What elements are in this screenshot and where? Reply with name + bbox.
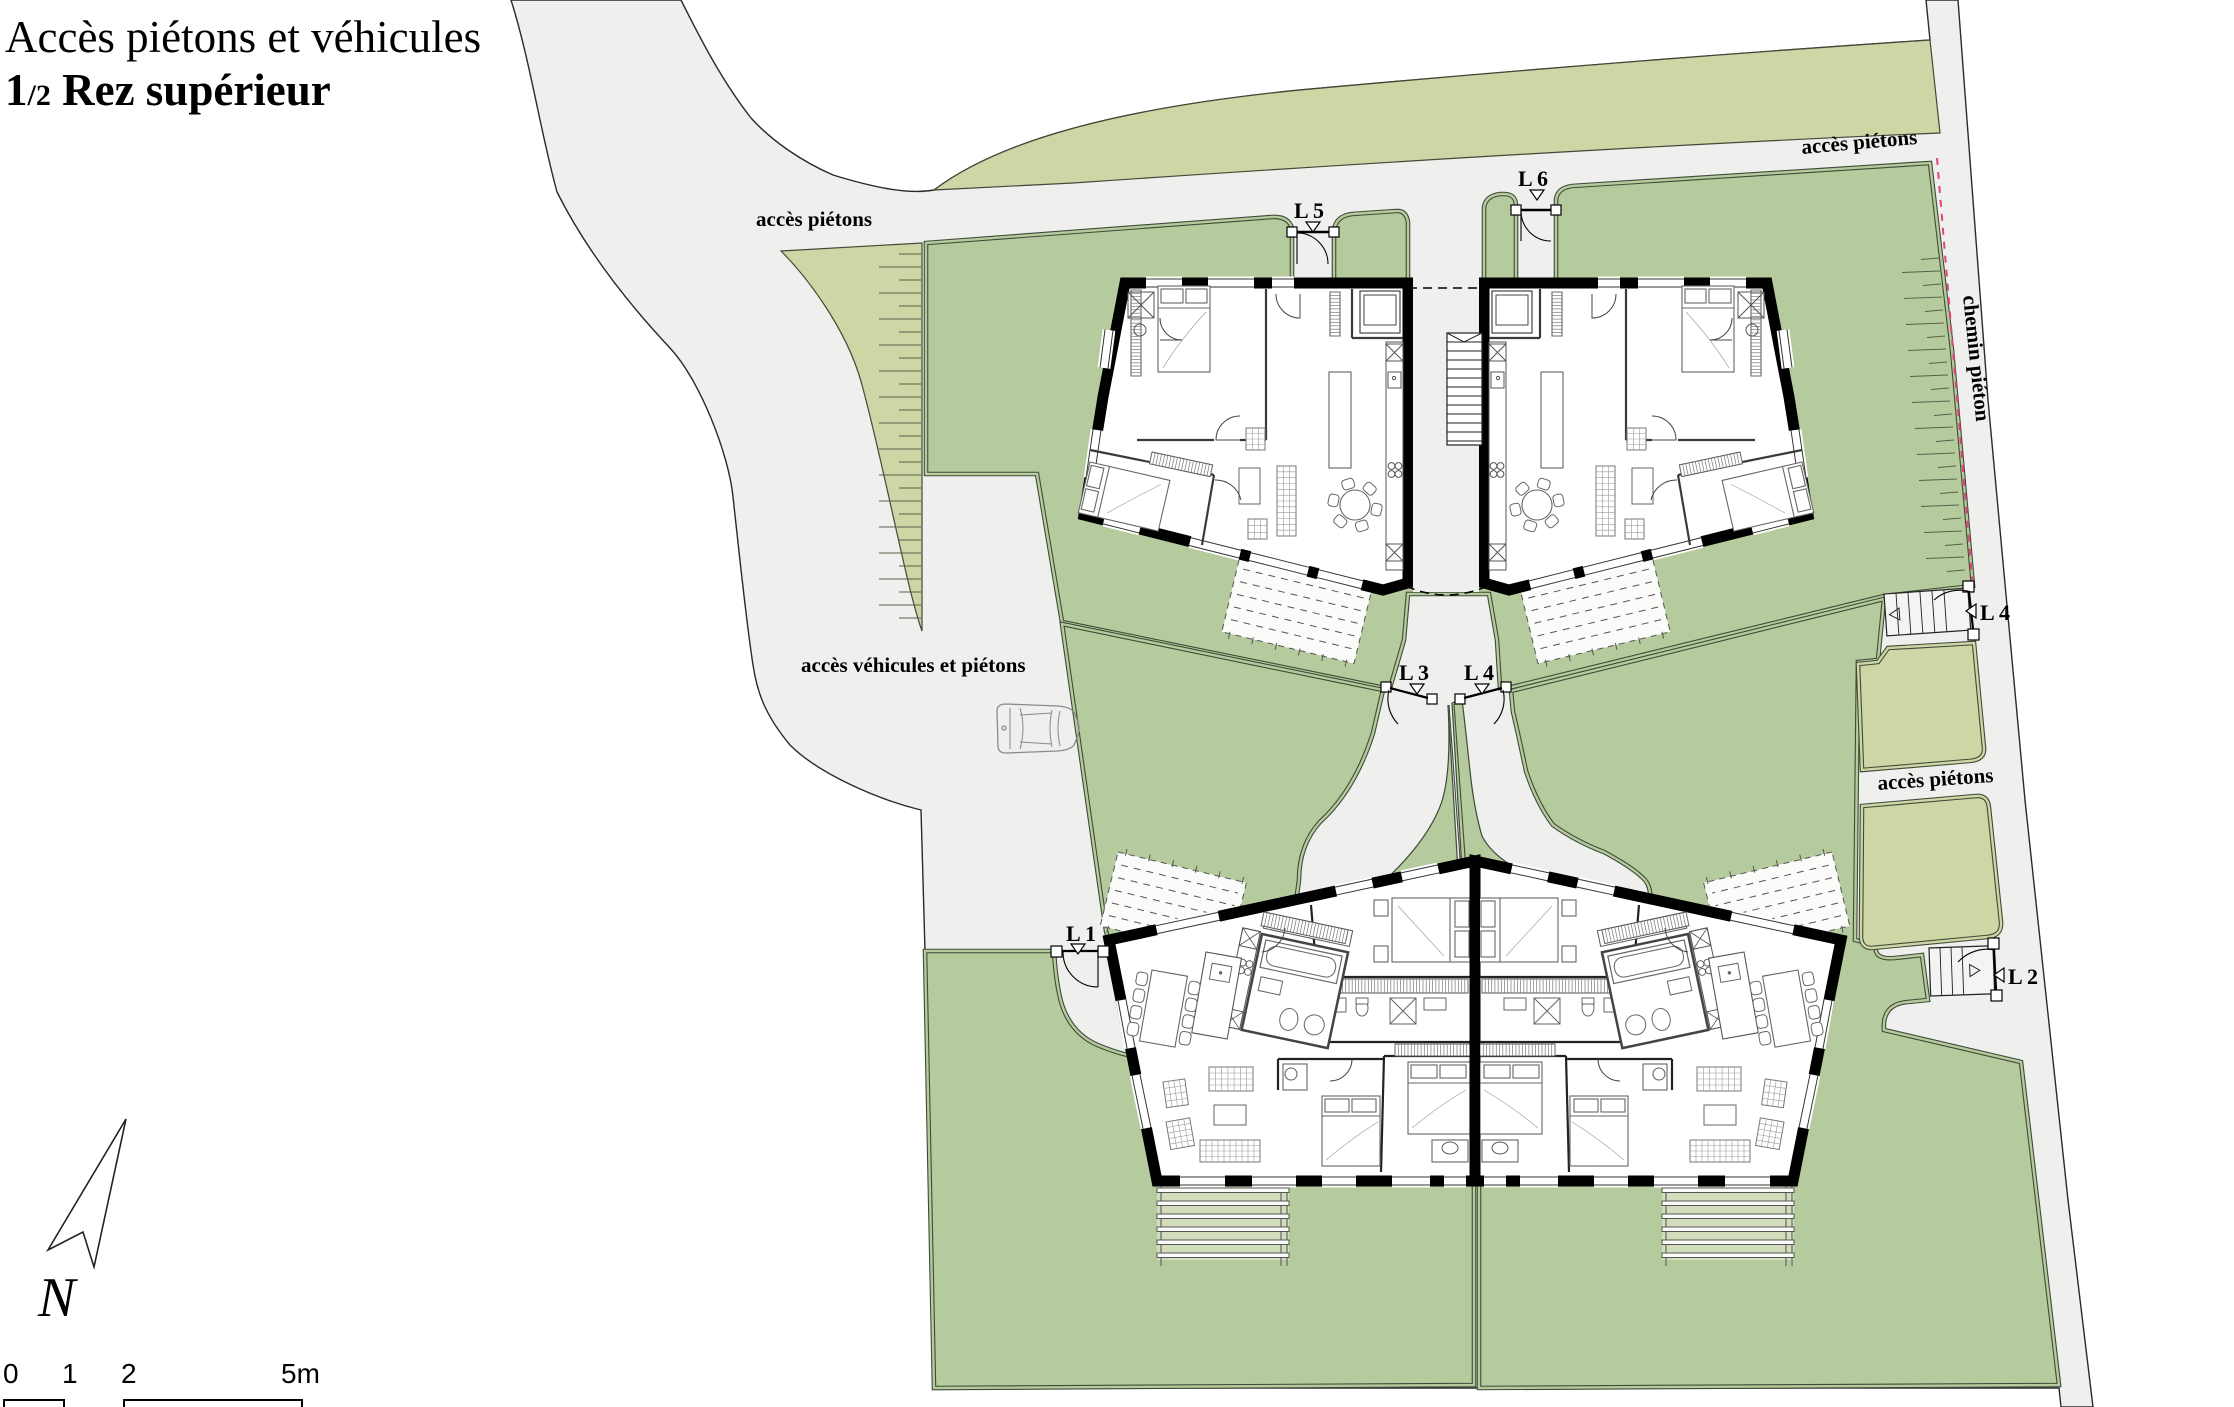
svg-text:1/2 Rez supérieur: 1/2 Rez supérieur — [5, 65, 331, 115]
svg-text:2: 2 — [121, 1358, 137, 1389]
svg-text:L 6: L 6 — [1518, 166, 1548, 191]
svg-text:N: N — [37, 1267, 78, 1329]
svg-text:L 5: L 5 — [1294, 198, 1324, 223]
svg-text:accès véhicules et piétons: accès véhicules et piétons — [801, 653, 1026, 677]
svg-text:L 1: L 1 — [1066, 921, 1096, 946]
svg-text:L 4: L 4 — [1464, 660, 1494, 685]
svg-text:L 4: L 4 — [1980, 600, 2010, 625]
svg-text:L 3: L 3 — [1399, 660, 1429, 685]
svg-text:L 2: L 2 — [2008, 964, 2038, 989]
svg-text:Accès piétons et véhicules: Accès piétons et véhicules — [5, 12, 481, 62]
svg-text:1: 1 — [62, 1358, 78, 1389]
svg-text:5m: 5m — [281, 1358, 320, 1389]
svg-text:0: 0 — [3, 1358, 19, 1389]
svg-text:accès piétons: accès piétons — [756, 207, 872, 231]
